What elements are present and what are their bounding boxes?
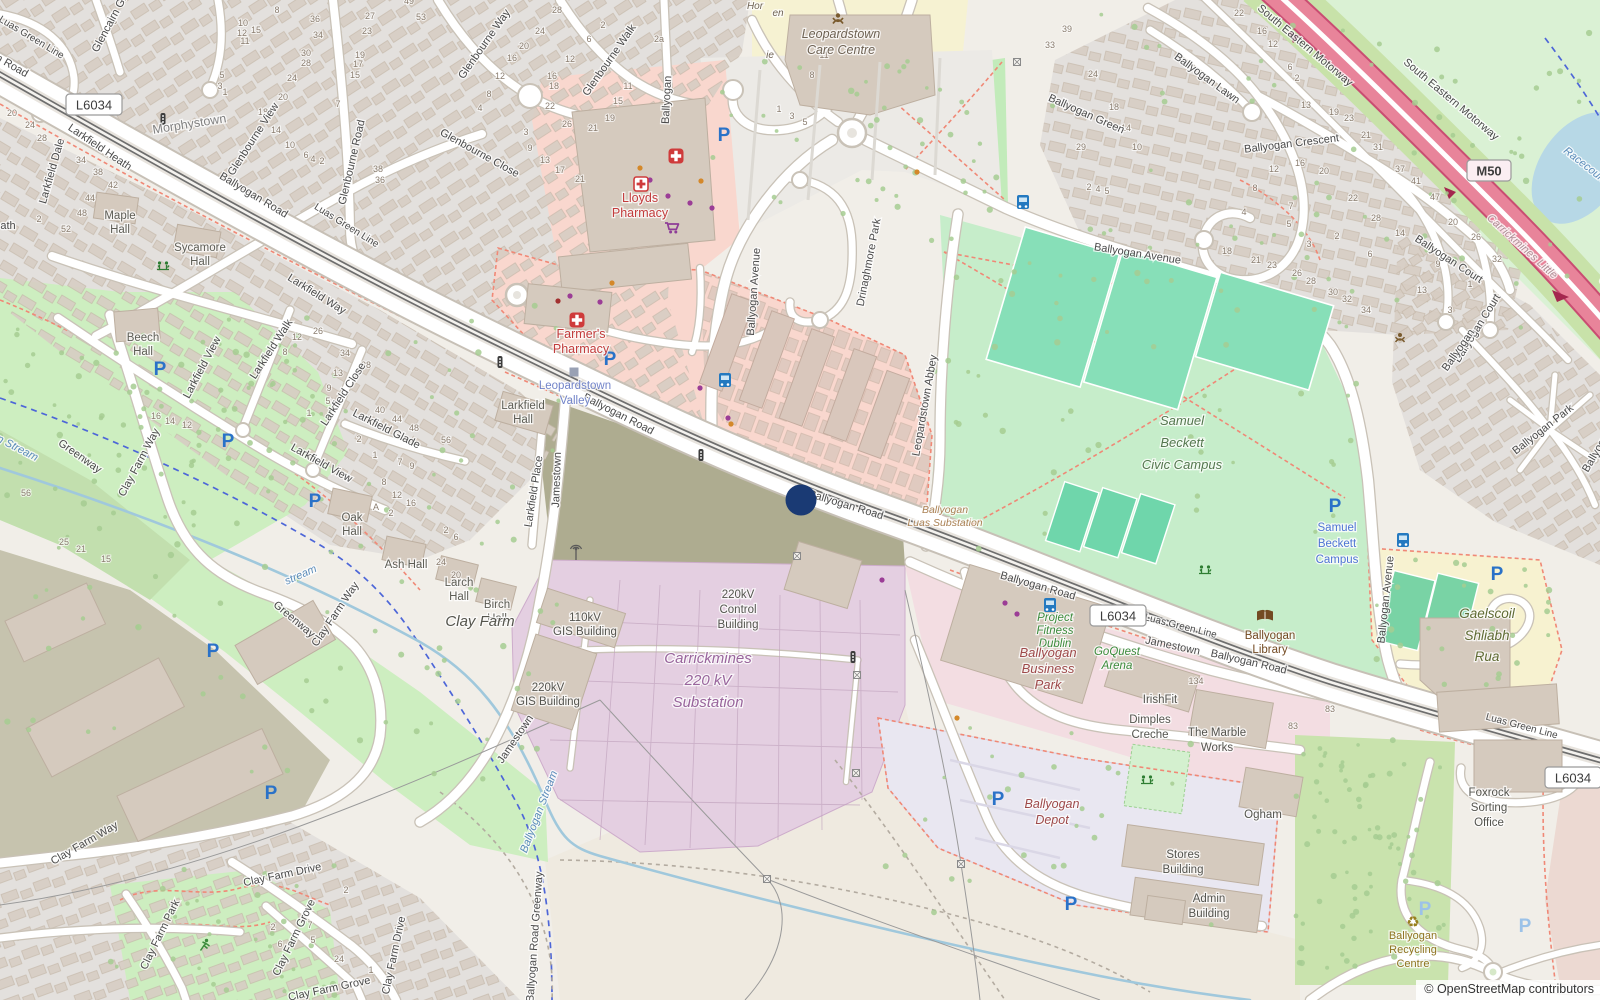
tree	[1546, 633, 1550, 637]
tree	[1352, 835, 1358, 841]
tree	[1069, 731, 1073, 735]
map-label-220kv: 220kV	[532, 682, 565, 694]
tree	[1246, 76, 1251, 81]
tree	[234, 520, 240, 526]
tree	[221, 408, 226, 413]
tree	[1356, 797, 1362, 803]
tree	[93, 360, 99, 366]
tree	[1342, 840, 1347, 845]
tree	[1105, 330, 1109, 334]
tree	[31, 352, 35, 356]
tree	[1462, 584, 1466, 588]
tree	[243, 352, 249, 358]
tree	[1375, 825, 1380, 830]
house-number: 3	[1447, 305, 1452, 315]
house-number: 21	[588, 123, 598, 133]
tree	[1299, 960, 1305, 966]
tree	[1341, 29, 1345, 33]
tree	[116, 467, 122, 473]
tree	[475, 349, 481, 355]
house-number: 39	[1062, 24, 1072, 34]
house-number: 36	[375, 175, 385, 185]
tree	[1442, 682, 1447, 687]
tree	[1318, 746, 1323, 751]
map-label-foxrock: Foxrock	[1469, 787, 1510, 799]
parking-icon	[1065, 894, 1078, 915]
house-number: 8	[1252, 183, 1257, 193]
house-number: 12	[1268, 39, 1278, 49]
poi-dot	[954, 715, 959, 720]
tree	[1061, 418, 1065, 422]
house-number: 10	[285, 140, 295, 150]
house-number: 34	[76, 155, 86, 165]
tree	[201, 340, 206, 345]
tree	[1453, 79, 1458, 84]
tree	[111, 511, 116, 516]
tree	[1059, 274, 1063, 278]
tree	[854, 92, 859, 97]
tree	[192, 459, 196, 463]
parking-icon	[265, 783, 278, 804]
house-number: 24	[1088, 69, 1098, 79]
tree	[282, 989, 286, 993]
tree	[1387, 835, 1392, 840]
tree	[329, 550, 334, 555]
house-number: 28	[1306, 276, 1316, 286]
map-canvas[interactable]: P P	[0, 0, 1600, 1000]
tree	[1329, 459, 1334, 464]
tree	[1088, 226, 1094, 232]
map-label-carrickmines: Carrickmines	[664, 650, 752, 667]
house-number: 21	[1361, 130, 1371, 140]
tree	[1523, 178, 1529, 184]
tree	[1577, 100, 1581, 104]
house-number: 12	[392, 490, 402, 500]
tree	[795, 138, 799, 142]
tree	[1394, 298, 1399, 303]
house-number: 32	[1492, 254, 1502, 264]
tree	[1326, 195, 1332, 201]
tree	[1514, 281, 1519, 286]
tree	[1384, 237, 1389, 242]
tree	[1009, 291, 1015, 297]
house-number: 8	[809, 70, 814, 80]
house-number: 18	[1222, 246, 1232, 256]
pylon-icon	[958, 861, 965, 868]
tree	[218, 388, 223, 393]
house-number: 26	[313, 326, 323, 336]
map-label-works: Works	[1201, 742, 1234, 754]
house-number: 16	[1257, 26, 1267, 36]
house-number: 5	[310, 935, 315, 945]
house-number: 20	[278, 92, 288, 102]
tree	[1347, 787, 1352, 792]
house-number: 22	[1348, 193, 1358, 203]
house-number: 11	[623, 81, 632, 91]
house-number: 28	[301, 58, 311, 68]
tree	[448, 368, 452, 372]
tree	[163, 515, 167, 519]
tree	[868, 123, 874, 129]
house-number: 16	[406, 498, 416, 508]
tree	[80, 356, 85, 361]
tree	[1272, 233, 1276, 237]
house-number: 4	[1241, 207, 1246, 217]
poi-dot	[728, 421, 733, 426]
parking-icon	[309, 491, 322, 512]
attribution[interactable]: © OpenStreetMap contributors	[1416, 980, 1600, 1000]
poi-dot	[597, 299, 602, 304]
tree	[197, 967, 201, 971]
tree	[160, 886, 166, 892]
tree	[1368, 828, 1372, 832]
house-number: 11	[240, 36, 249, 46]
tree	[1325, 798, 1330, 803]
tree	[1095, 442, 1101, 448]
tree	[1074, 824, 1078, 828]
tree	[1231, 461, 1235, 465]
map-label-samuel: Samuel	[1160, 413, 1205, 428]
map-label-samuel: Samuel	[1318, 522, 1357, 534]
tree	[1337, 320, 1341, 324]
map-label-valley: Valley	[560, 395, 591, 407]
tree	[224, 987, 229, 992]
tree	[1312, 814, 1317, 819]
tree	[1496, 676, 1501, 681]
tree	[30, 718, 36, 724]
tree	[76, 373, 82, 379]
tree	[495, 520, 500, 525]
house-number: 3	[789, 111, 794, 121]
traffic-signal-icon	[498, 356, 503, 368]
tree	[1259, 59, 1263, 63]
tree	[532, 303, 538, 309]
tree	[1586, 30, 1592, 36]
map-label-leopardstown: Leopardstown	[539, 380, 611, 392]
tree	[121, 422, 126, 427]
tree	[1299, 232, 1305, 238]
house-number: 14	[271, 125, 281, 135]
tree	[964, 110, 969, 115]
tree	[998, 278, 1003, 283]
house-number: 20	[1319, 166, 1329, 176]
tree	[473, 587, 478, 592]
tree	[153, 574, 158, 579]
tree	[1312, 307, 1317, 312]
map-label-sycamore: Sycamore	[174, 242, 226, 254]
tree	[1314, 779, 1319, 784]
house-number: 9	[326, 383, 331, 393]
poi-dot	[879, 577, 884, 582]
tree	[385, 350, 391, 356]
tree	[174, 541, 180, 547]
tree	[1439, 646, 1444, 651]
house-number: 2	[356, 434, 361, 444]
pylon-icon	[794, 553, 801, 560]
tree	[1080, 806, 1085, 811]
house-number: 16	[1295, 158, 1305, 168]
road-shield-l6034: L6034	[1090, 605, 1146, 626]
house-number: 14	[1395, 228, 1405, 238]
tree	[888, 145, 893, 150]
pharmacy-icon	[669, 149, 684, 164]
house-number: 2	[270, 922, 275, 932]
tree	[414, 728, 420, 734]
tree	[1298, 391, 1304, 397]
tree	[182, 500, 186, 504]
tree	[772, 195, 777, 200]
house-number: 9	[527, 143, 532, 153]
tram-stop-icon	[570, 368, 579, 377]
tree	[1169, 278, 1174, 283]
tree	[797, 65, 802, 70]
house-number: 52	[61, 224, 71, 234]
tree	[485, 738, 489, 742]
tree	[1051, 864, 1057, 870]
house-number: 41	[1411, 176, 1421, 186]
tree	[480, 776, 485, 781]
tree	[1229, 224, 1233, 228]
tree	[266, 489, 270, 493]
tree	[1326, 277, 1331, 282]
map-label-ash-hall: Ash Hall	[385, 559, 428, 571]
map-label-ballyogan: Ballyogan	[1025, 797, 1080, 811]
tree	[1484, 682, 1489, 687]
tree	[1350, 289, 1355, 294]
map-label-hall: Hall	[110, 224, 130, 236]
tree	[431, 771, 436, 776]
tree	[207, 932, 211, 936]
tree	[992, 344, 998, 350]
attribution-text[interactable]: © OpenStreetMap contributors	[1424, 982, 1594, 996]
tree	[961, 178, 967, 184]
tree	[4, 492, 10, 498]
tree	[1131, 24, 1137, 30]
tree	[931, 909, 937, 915]
map-label-hall: Hall	[133, 346, 153, 358]
tree	[1351, 936, 1356, 941]
tree	[1209, 922, 1214, 927]
house-number: 10	[238, 18, 248, 28]
house-number: 15	[251, 25, 261, 35]
map-label-fitness: Fitness	[1036, 625, 1073, 637]
tree	[1339, 769, 1343, 773]
tree	[1102, 231, 1106, 235]
tree	[1054, 339, 1060, 345]
tree	[968, 726, 972, 730]
house-number: 6	[453, 532, 458, 542]
tree	[1369, 885, 1373, 889]
tree	[917, 117, 923, 123]
poi-dot	[567, 293, 572, 298]
tree	[551, 448, 555, 452]
firstaid-icon	[634, 177, 648, 191]
road-shield-l6034: L6034	[66, 94, 122, 115]
house-number: 22	[1234, 8, 1244, 18]
tree	[250, 770, 254, 774]
parking-icon	[207, 641, 220, 662]
house-number: 38	[373, 164, 383, 174]
bus-stop-icon	[719, 373, 731, 387]
map-label-the-marble: The Marble	[1188, 727, 1246, 739]
tree	[1391, 832, 1397, 838]
tree	[1442, 923, 1446, 927]
tree	[171, 956, 176, 961]
house-number: 12	[182, 420, 192, 430]
map-label-pharmacy: Pharmacy	[553, 342, 610, 356]
house-number: 4	[310, 154, 315, 164]
house-number: 6	[1287, 62, 1292, 72]
house-number: 2	[600, 20, 605, 30]
tree	[81, 500, 87, 506]
house-number: 5	[219, 70, 224, 80]
tree	[1451, 198, 1457, 204]
tree	[172, 614, 176, 618]
house-number: 40	[375, 405, 385, 415]
map-label-maple: Maple	[104, 210, 135, 222]
tree	[874, 117, 880, 123]
tree	[87, 585, 92, 590]
tree	[33, 594, 38, 599]
tree	[884, 63, 890, 69]
house-number: 6	[303, 150, 308, 160]
house-number: 8	[486, 89, 491, 99]
tree	[956, 421, 962, 427]
tree	[1323, 751, 1327, 755]
house-number: 2	[443, 525, 448, 535]
map-label-hall: Hall	[449, 591, 469, 603]
tree	[959, 100, 964, 105]
map-label-centre: Centre	[1396, 958, 1429, 970]
house-number: 28	[1371, 213, 1381, 223]
tree	[1387, 771, 1393, 777]
tree	[1099, 13, 1103, 17]
tree	[550, 620, 555, 625]
tree	[108, 959, 114, 965]
tree	[459, 458, 463, 462]
tree	[720, 90, 725, 95]
tree	[923, 817, 927, 821]
map-label-civic-campus: Civic Campus	[1142, 457, 1223, 472]
house-number: 3	[523, 127, 528, 137]
house-number: 21	[76, 544, 86, 554]
map-label-dimples: Dimples	[1129, 714, 1171, 726]
map-label-irishfit: IrishFit	[1143, 694, 1178, 706]
pharmacy-icon	[570, 313, 585, 328]
poi-dot	[697, 385, 702, 390]
pylon-icon	[1014, 59, 1021, 66]
tree	[338, 666, 343, 671]
tree	[233, 349, 239, 355]
parking-icon	[1491, 564, 1504, 585]
bus-stop-icon	[1017, 195, 1029, 209]
tree	[901, 64, 906, 69]
tree	[332, 441, 337, 446]
tree	[1343, 778, 1348, 783]
tree	[304, 315, 310, 321]
tree	[358, 544, 363, 549]
tree	[902, 853, 907, 858]
map-label-ballyogan: Ballyogan	[1019, 645, 1076, 660]
tree	[1370, 63, 1374, 67]
tree	[1219, 289, 1224, 294]
tree	[729, 114, 733, 118]
tree	[1149, 169, 1153, 173]
tree	[114, 350, 119, 355]
house-number: 20	[1448, 217, 1458, 227]
house-number: 16	[507, 53, 517, 63]
tree	[929, 238, 934, 243]
tree	[159, 404, 164, 409]
map-label-project: Project	[1037, 612, 1074, 624]
house-number: 12	[565, 54, 575, 64]
house-number: 25	[59, 537, 69, 547]
house-number: 12	[495, 71, 505, 81]
tree	[1218, 408, 1222, 412]
tree	[304, 678, 309, 683]
location-marker[interactable]	[786, 485, 817, 516]
tree	[218, 675, 223, 680]
tree	[905, 59, 910, 64]
pylon-icon	[764, 876, 771, 883]
map-label-gaelscoil: Gaelscoil	[1459, 606, 1516, 621]
map-label-gis-building: GIS Building	[516, 696, 580, 708]
tree	[1451, 133, 1456, 138]
tree	[1292, 195, 1297, 200]
house-number: 30	[1328, 287, 1338, 297]
house-number: 1	[372, 450, 377, 460]
map-label-en: en	[772, 8, 784, 19]
tree	[1438, 765, 1442, 769]
svg-text:L6034: L6034	[1555, 771, 1591, 786]
tree	[227, 318, 231, 322]
tree	[76, 422, 80, 426]
tree	[157, 387, 162, 392]
tree	[25, 363, 30, 368]
tree	[1577, 196, 1583, 202]
tree	[1395, 584, 1401, 590]
tree	[178, 362, 184, 368]
tree	[976, 546, 982, 552]
tree	[1144, 45, 1149, 50]
tree	[240, 693, 246, 699]
tree	[864, 80, 868, 84]
tree	[92, 478, 98, 484]
tree	[1202, 394, 1207, 399]
tree	[1318, 791, 1322, 795]
house-number: 12	[292, 332, 302, 342]
map-viewport[interactable]: P P	[0, 0, 1600, 1000]
tree	[1196, 243, 1200, 247]
map-label-building: Building	[718, 619, 759, 631]
house-number: 33	[1045, 40, 1055, 50]
tree	[1397, 643, 1403, 649]
house-number: 19	[1329, 107, 1339, 117]
tree	[196, 443, 201, 448]
map-label-gis-building: GIS Building	[553, 626, 617, 638]
tree	[437, 645, 443, 651]
house-number: 20	[7, 108, 17, 118]
tree	[1301, 752, 1306, 757]
tree	[1517, 136, 1521, 140]
tree	[515, 686, 521, 692]
tree	[1344, 958, 1350, 964]
tree	[131, 384, 137, 390]
svg-text:L6034: L6034	[1100, 609, 1136, 624]
tree	[141, 406, 146, 411]
traffic-signal-icon	[851, 651, 856, 663]
tree	[1054, 301, 1058, 305]
